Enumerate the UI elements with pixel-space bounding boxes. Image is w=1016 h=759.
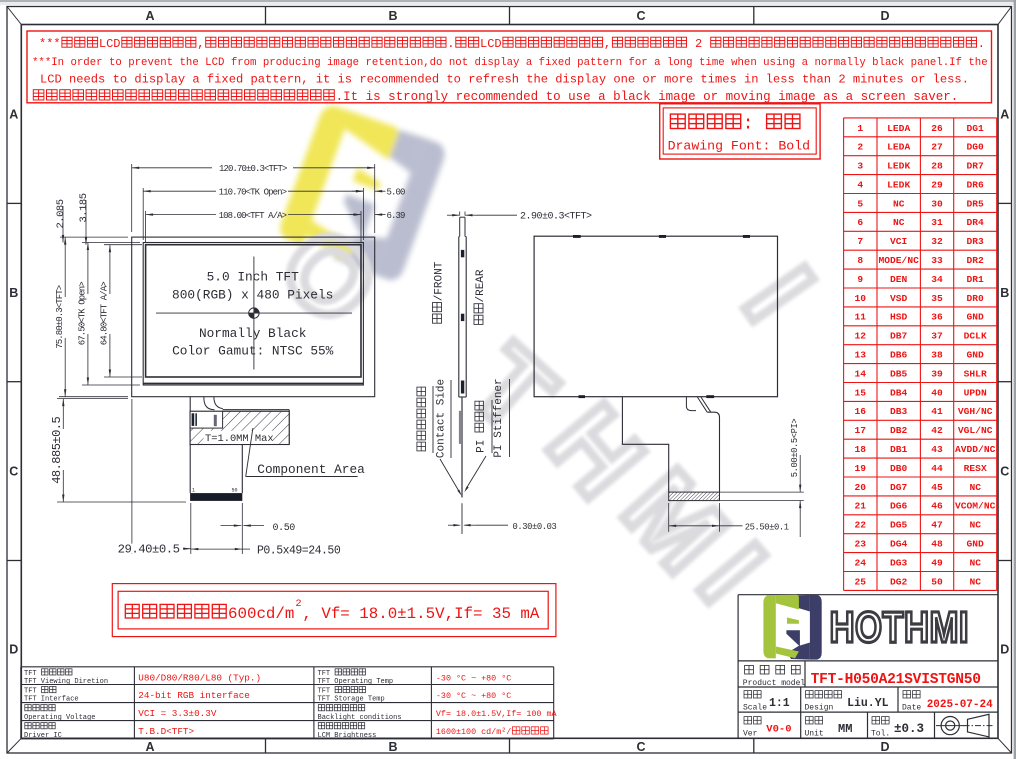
svg-text:DR0: DR0: [967, 293, 985, 304]
svg-text:GND: GND: [967, 350, 985, 361]
svg-text:Driver IC: Driver IC: [24, 732, 62, 740]
svg-text:22: 22: [855, 520, 867, 531]
svg-text:C: C: [9, 465, 18, 479]
svg-text:DB0: DB0: [890, 463, 908, 474]
svg-text:DB5: DB5: [890, 368, 908, 379]
svg-text:Backlight conditions: Backlight conditions: [318, 714, 402, 722]
svg-text:50: 50: [232, 488, 238, 494]
svg-text:***In order to prevent the LCD: ***In order to prevent the LCD from prod…: [32, 57, 988, 69]
svg-text:DB1: DB1: [890, 444, 908, 455]
svg-text:17: 17: [855, 425, 867, 436]
svg-text:D: D: [880, 740, 889, 754]
svg-text:48: 48: [931, 539, 943, 550]
svg-text:LCM Brightness: LCM Brightness: [318, 732, 377, 740]
svg-text:29: 29: [931, 179, 943, 190]
svg-text:DB2: DB2: [890, 425, 908, 436]
svg-text:6.39: 6.39: [387, 211, 406, 221]
svg-text:HOTHMI: HOTHMI: [830, 603, 969, 652]
svg-text:2: 2: [857, 142, 863, 153]
svg-text:NC: NC: [969, 482, 981, 493]
svg-text:3: 3: [857, 161, 863, 172]
svg-text:B: B: [388, 9, 397, 23]
svg-text:26: 26: [931, 123, 943, 134]
svg-text:A: A: [1000, 108, 1009, 122]
svg-text:0.50: 0.50: [273, 523, 296, 534]
svg-text:TFT Operating Temp: TFT Operating Temp: [318, 678, 394, 686]
svg-text:35: 35: [931, 293, 943, 304]
svg-text:VCOM/NC: VCOM/NC: [955, 501, 996, 512]
svg-text:TFT: TFT: [318, 670, 335, 678]
svg-text:16: 16: [855, 406, 867, 417]
svg-text:18: 18: [855, 444, 867, 455]
svg-text:27: 27: [931, 142, 943, 153]
svg-text:LCD: LCD: [480, 37, 502, 51]
svg-text:Tol.: Tol.: [871, 730, 890, 739]
svg-text:7: 7: [857, 236, 863, 247]
svg-text:Ver: Ver: [743, 730, 758, 739]
svg-text:VGH/NC: VGH/NC: [958, 406, 993, 417]
svg-text:33: 33: [931, 255, 943, 266]
svg-text:,: ,: [197, 37, 204, 51]
svg-text:TFT: TFT: [318, 688, 335, 696]
svg-text:DR2: DR2: [967, 255, 985, 266]
svg-text:LCD: LCD: [99, 37, 121, 51]
svg-text:49: 49: [931, 558, 943, 569]
svg-text:DG5: DG5: [890, 520, 908, 531]
svg-text:24-bit RGB interface: 24-bit RGB interface: [138, 690, 250, 701]
svg-text:15: 15: [855, 387, 867, 398]
svg-text:Component Area: Component Area: [257, 462, 365, 477]
svg-text:34: 34: [931, 274, 943, 285]
svg-text:LEDA: LEDA: [887, 123, 910, 134]
svg-text:120.70±0.3<TFT>: 120.70±0.3<TFT>: [219, 164, 287, 174]
svg-text:42: 42: [931, 425, 943, 436]
svg-text:2.085: 2.085: [55, 199, 67, 228]
svg-text:2.90±0.3<TFT>: 2.90±0.3<TFT>: [520, 212, 592, 223]
svg-text:NC: NC: [969, 520, 981, 531]
svg-text:DB3: DB3: [890, 406, 908, 417]
svg-text:PI: PI: [476, 433, 488, 453]
svg-text:-30 °C ~ +80 °C: -30 °C ~ +80 °C: [436, 673, 511, 683]
svg-text:, Vf= 18.0±1.5V,If= 35 mA: , Vf= 18.0±1.5V,If= 35 mA: [302, 605, 540, 623]
svg-text:DR4: DR4: [967, 217, 985, 228]
svg-text:23: 23: [855, 539, 867, 550]
svg-text:67.50<TK Open>: 67.50<TK Open>: [78, 282, 88, 346]
svg-text:14: 14: [855, 368, 867, 379]
svg-text:A: A: [145, 9, 154, 23]
svg-text:B: B: [1000, 286, 1009, 300]
svg-text:24: 24: [855, 558, 867, 569]
svg-text:DB4: DB4: [890, 387, 908, 398]
svg-text:46: 46: [931, 501, 943, 512]
svg-text:5: 5: [857, 198, 863, 209]
svg-text:***: ***: [39, 37, 61, 51]
svg-text:D: D: [880, 9, 889, 23]
svg-text:TFT: TFT: [24, 670, 41, 678]
svg-text:5.00±0.5<PI>: 5.00±0.5<PI>: [790, 419, 800, 478]
svg-text:1600±100 cd/m²/: 1600±100 cd/m²/: [436, 727, 511, 737]
svg-text:VCI: VCI: [890, 236, 908, 247]
svg-text:D: D: [9, 643, 18, 657]
svg-text:VCI = 3.3±0.3V: VCI = 3.3±0.3V: [138, 708, 217, 719]
svg-text:DG6: DG6: [890, 501, 908, 512]
svg-text:B: B: [9, 286, 18, 300]
svg-text:VGL/NC: VGL/NC: [958, 425, 993, 436]
svg-text:GND: GND: [967, 312, 985, 323]
svg-text:,: ,: [604, 37, 611, 51]
svg-text:DB7: DB7: [890, 331, 908, 342]
svg-text:Vf= 18.0±1.5V,If= 100 mA: Vf= 18.0±1.5V,If= 100 mA: [436, 709, 558, 719]
svg-text:TFT Interface: TFT Interface: [24, 696, 79, 704]
svg-text:4: 4: [857, 179, 863, 190]
svg-text:39: 39: [931, 368, 943, 379]
svg-text:45: 45: [931, 482, 943, 493]
svg-text:1:1: 1:1: [769, 697, 790, 710]
svg-text:LEDA: LEDA: [887, 142, 910, 153]
svg-text:110.70<TK Open>: 110.70<TK Open>: [219, 188, 287, 198]
svg-text:11: 11: [855, 312, 867, 323]
svg-text:DG1: DG1: [967, 123, 985, 134]
svg-text:SHLR: SHLR: [964, 368, 987, 379]
svg-text:29.40±0.5: 29.40±0.5: [118, 542, 180, 556]
svg-text:DG3: DG3: [890, 558, 908, 569]
svg-text:19: 19: [855, 463, 867, 474]
svg-text:41: 41: [931, 406, 943, 417]
svg-text:DR6: DR6: [967, 179, 985, 190]
svg-text:3.185: 3.185: [78, 193, 90, 222]
svg-text:5.0 Inch TFT: 5.0 Inch TFT: [207, 270, 299, 285]
svg-text:28: 28: [931, 161, 943, 172]
svg-text:UPDN: UPDN: [964, 387, 987, 398]
svg-text:DCLK: DCLK: [964, 331, 987, 342]
svg-text:Date: Date: [902, 704, 921, 713]
svg-text:1: 1: [857, 123, 863, 134]
svg-text::: :: [743, 114, 765, 135]
svg-text:TFT Viewing Diretion: TFT Viewing Diretion: [24, 678, 108, 686]
svg-text:HSD: HSD: [890, 312, 908, 323]
svg-text:AVDD/NC: AVDD/NC: [955, 444, 996, 455]
svg-text:Product model: Product model: [743, 679, 806, 688]
svg-text:.: .: [447, 37, 454, 51]
svg-text:±0.3: ±0.3: [894, 722, 924, 736]
svg-text:DR1: DR1: [967, 274, 985, 285]
svg-text:DG4: DG4: [890, 539, 908, 550]
svg-text:Design: Design: [805, 704, 834, 713]
svg-text:10: 10: [855, 293, 867, 304]
svg-text:B: B: [388, 740, 397, 754]
svg-text:30: 30: [931, 198, 943, 209]
svg-text:8: 8: [857, 255, 863, 266]
svg-text:25.50±0.1: 25.50±0.1: [745, 522, 789, 532]
svg-text:TFT Storage Temp: TFT Storage Temp: [318, 696, 385, 704]
svg-text:44: 44: [931, 463, 943, 474]
svg-text:I: I: [722, 247, 837, 340]
svg-text:LEDK: LEDK: [887, 179, 910, 190]
svg-text:T=1.0MM Max: T=1.0MM Max: [205, 433, 274, 445]
svg-text:36: 36: [931, 312, 943, 323]
svg-text:GND: GND: [967, 539, 985, 550]
svg-text:5.00: 5.00: [387, 188, 406, 198]
svg-text:32: 32: [931, 236, 943, 247]
svg-text:C: C: [636, 9, 645, 23]
svg-text:6: 6: [857, 217, 863, 228]
svg-text:48.885±0.5: 48.885±0.5: [50, 416, 64, 483]
svg-text:0.30±0.03: 0.30±0.03: [513, 522, 557, 532]
svg-text:Drawing Font: Bold: Drawing Font: Bold: [668, 139, 810, 154]
svg-text:RESX: RESX: [964, 463, 987, 474]
svg-text:DG2: DG2: [890, 576, 908, 587]
svg-text:C: C: [1000, 465, 1009, 479]
svg-text:/FRONT: /FRONT: [434, 261, 446, 301]
svg-text:P0.5x49=24.50: P0.5x49=24.50: [257, 545, 341, 558]
svg-text:VSD: VSD: [890, 293, 908, 304]
svg-text:600cd/m: 600cd/m: [228, 605, 294, 623]
svg-text:38: 38: [931, 350, 943, 361]
svg-text:NC: NC: [969, 576, 981, 587]
svg-text:U80/D80/R80/L80 (Typ.): U80/D80/R80/L80 (Typ.): [138, 672, 261, 683]
svg-text:NC: NC: [969, 558, 981, 569]
svg-text:C: C: [636, 740, 645, 754]
svg-text:Color Gamut: NTSC 55%: Color Gamut: NTSC 55%: [172, 344, 334, 359]
svg-text:12: 12: [855, 331, 867, 342]
svg-text:21: 21: [855, 501, 867, 512]
svg-text:T.B.D<TFT>: T.B.D<TFT>: [138, 726, 194, 737]
svg-text:DR7: DR7: [967, 161, 985, 172]
svg-text:40: 40: [931, 387, 943, 398]
svg-text:LEDK: LEDK: [887, 161, 910, 172]
svg-text:75.80±0.3<TFT>: 75.80±0.3<TFT>: [55, 285, 65, 349]
svg-text:A: A: [9, 108, 18, 122]
svg-text:Operating Voltage: Operating Voltage: [24, 714, 95, 722]
svg-text:DR5: DR5: [967, 198, 985, 209]
svg-text:DG7: DG7: [890, 482, 908, 493]
svg-text:PI Stiffener: PI Stiffener: [493, 378, 505, 457]
svg-text:MM: MM: [838, 722, 852, 736]
svg-text:800(RGB) x 480 Pixels: 800(RGB) x 480 Pixels: [172, 288, 333, 303]
svg-text:NC: NC: [893, 198, 905, 209]
svg-text:.It is strongly recommended to: .It is strongly recommended to use a bla…: [336, 90, 959, 104]
svg-text:DR3: DR3: [967, 236, 985, 247]
svg-text:TFT: TFT: [24, 688, 41, 696]
svg-text:25: 25: [855, 576, 867, 587]
svg-text:TFT-H050A21SVISTGN50: TFT-H050A21SVISTGN50: [811, 672, 981, 688]
svg-text:DB6: DB6: [890, 350, 908, 361]
svg-text:.: .: [978, 37, 985, 51]
svg-text:D: D: [1000, 643, 1009, 657]
svg-text:50: 50: [931, 576, 943, 587]
svg-text:Unit: Unit: [805, 730, 824, 739]
svg-text:43: 43: [931, 444, 943, 455]
svg-text:37: 37: [931, 331, 943, 342]
svg-text:A: A: [145, 740, 154, 754]
svg-text:V0-0: V0-0: [766, 724, 791, 736]
svg-text:MODE/NC: MODE/NC: [879, 255, 920, 266]
svg-text:1: 1: [192, 488, 195, 494]
svg-text:2: 2: [688, 37, 710, 51]
svg-text:-30 °C ~ +80 °C: -30 °C ~ +80 °C: [436, 691, 511, 701]
svg-text:64.80<TFT A/A>: 64.80<TFT A/A>: [100, 282, 110, 346]
svg-text:31: 31: [931, 217, 943, 228]
svg-text:20: 20: [855, 482, 867, 493]
svg-text:Normally Black: Normally Black: [199, 326, 307, 341]
svg-text:DEN: DEN: [890, 274, 908, 285]
svg-text:/REAR: /REAR: [475, 269, 487, 302]
svg-text:Contact Side: Contact Side: [436, 379, 448, 458]
svg-text:DG0: DG0: [967, 142, 985, 153]
svg-text:9: 9: [857, 274, 863, 285]
svg-text:108.00<TFT A/A>: 108.00<TFT A/A>: [219, 211, 287, 221]
svg-text:Scale: Scale: [743, 704, 767, 713]
svg-text:47: 47: [931, 520, 943, 531]
svg-text:NC: NC: [893, 217, 905, 228]
svg-text:LCD needs to display a fixed p: LCD needs to display a fixed pattern, it…: [40, 72, 969, 86]
svg-text:13: 13: [855, 350, 867, 361]
svg-text:2: 2: [295, 598, 301, 610]
svg-text:2025-07-24: 2025-07-24: [927, 699, 993, 711]
svg-text:Liu.YL: Liu.YL: [847, 697, 889, 710]
